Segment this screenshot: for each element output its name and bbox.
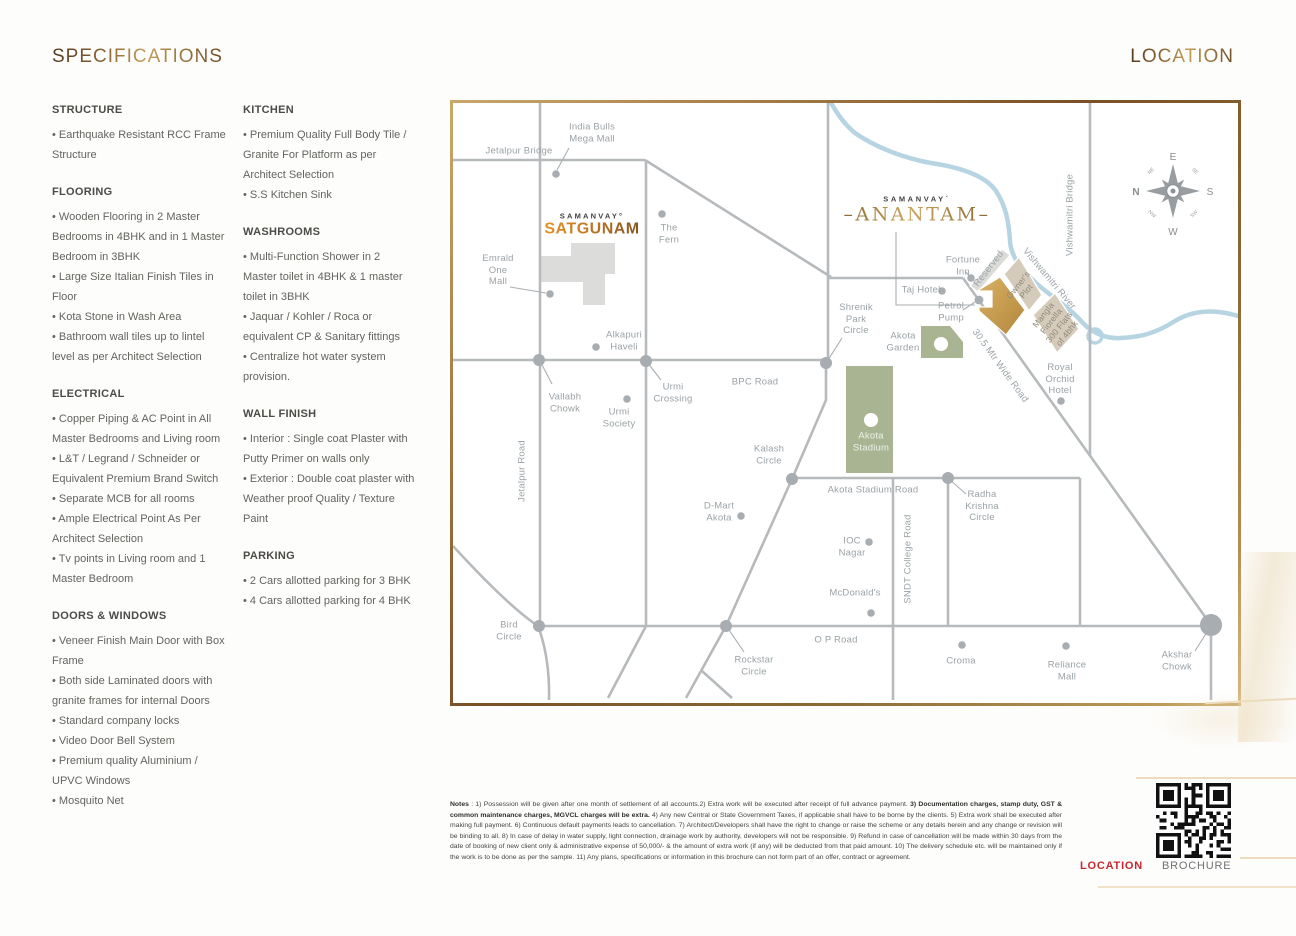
- page-title-specifications: SPECIFICATIONS: [52, 46, 223, 68]
- location-map: E S W N NE SE SW NW India Bulls Mega Mal…: [450, 100, 1241, 706]
- anantam-brand-mark: SAMANVAY´: [843, 195, 990, 204]
- satgunam-brand-mark: SAMANVAY°: [544, 212, 639, 221]
- spec-item: • S.S Kitchen Sink: [243, 185, 415, 205]
- decor-streak: [1136, 777, 1296, 779]
- spec-item: • Video Door Bell System: [52, 731, 228, 751]
- footer-tab-brochure[interactable]: BROCHURE: [1162, 860, 1231, 872]
- spec-section-wall-finish: WALL FINISH• Interior : Single coat Plas…: [243, 408, 415, 529]
- spec-item: • L&T / Legrand / Schneider or Equivalen…: [52, 449, 228, 489]
- spec-section-title: STRUCTURE: [52, 104, 228, 116]
- spec-item: • Kota Stone in Wash Area: [52, 307, 228, 327]
- notes-paragraph: Notes : 1) Possession will be given afte…: [450, 800, 1062, 864]
- spec-item: • Premium Quality Full Body Tile / Grani…: [243, 125, 415, 185]
- spec-item: • Large Size Italian Finish Tiles in Flo…: [52, 267, 228, 307]
- map-label-radha-krishna-circle: Radha Krishna Circle: [965, 489, 999, 524]
- map-label-reliance-mall: Reliance Mall: [1048, 660, 1087, 683]
- anantam-logo: SAMANVAY´ –ANANTAM–: [843, 195, 990, 226]
- map-label-akshar-chowk: Akshar Chowk: [1162, 650, 1193, 673]
- map-label-op-road: O P Road: [814, 634, 857, 646]
- spec-section-title: WALL FINISH: [243, 408, 415, 420]
- map-label-sndt-college-road: SNDT College Road: [902, 514, 914, 603]
- spec-section-title: PARKING: [243, 550, 415, 562]
- map-label-shrenik-park-circle: Shrenik Park Circle: [839, 302, 873, 337]
- decor-streak: [1098, 886, 1296, 888]
- spec-item: • Tv points in Living room and 1 Master …: [52, 549, 228, 589]
- map-label-alkapuri-haveli: Alkapuri Haveli: [606, 330, 642, 353]
- satgunam-project-name: SATGUNAM: [544, 221, 639, 239]
- spec-item: • Multi-Function Shower in 2 Master toil…: [243, 247, 415, 307]
- spec-section-title: KITCHEN: [243, 104, 415, 116]
- spec-item: • 4 Cars allotted parking for 4 BHK: [243, 591, 415, 611]
- spec-item: • Mosquito Net: [52, 791, 228, 811]
- spec-section-kitchen: KITCHEN• Premium Quality Full Body Tile …: [243, 104, 415, 205]
- footer-tab-location[interactable]: LOCATION: [1080, 860, 1143, 872]
- spec-section-electrical: ELECTRICAL• Copper Piping & AC Point in …: [52, 388, 228, 589]
- map-label-jetalpur-bridge: Jetalpur Bridge: [486, 145, 553, 157]
- map-label-vishwamitri-bridge: Vishwamitri Bridge: [1064, 174, 1076, 256]
- map-label-akota-garden: Akota Garden: [887, 331, 920, 354]
- notes-text-1: : 1) Possession will be given after one …: [469, 801, 910, 808]
- brochure-page: SPECIFICATIONS LOCATION STRUCTURE• Earth…: [0, 0, 1296, 936]
- map-label-bpc-road: BPC Road: [732, 376, 778, 388]
- map-labels-layer: India Bulls Mega MallJetalpur BridgeThe …: [453, 103, 1238, 703]
- map-label-fortune-inn: Fortune Inn: [946, 255, 980, 278]
- spec-section-doors-windows: DOORS & WINDOWS• Veneer Finish Main Door…: [52, 610, 228, 811]
- decor-streak: [1238, 552, 1296, 742]
- map-label-owners-plot: Owner's Plot: [1004, 269, 1040, 307]
- spec-section-flooring: FLOORING• Wooden Flooring in 2 Master Be…: [52, 186, 228, 367]
- map-label-jetalpur-road: Jetalpur Road: [516, 440, 528, 502]
- spec-section-title: ELECTRICAL: [52, 388, 228, 400]
- notes-label: Notes: [450, 801, 469, 808]
- map-label-kalash-circle: Kalash Circle: [754, 444, 784, 467]
- spec-item: • Separate MCB for all rooms: [52, 489, 228, 509]
- spec-item: • Earthquake Resistant RCC Frame Structu…: [52, 125, 228, 165]
- map-label-mcdonalds: McDonald's: [829, 587, 880, 599]
- map-label-akota-stadium-road: Akota Stadium Road: [828, 484, 919, 496]
- satgunam-logo: SAMANVAY° SATGUNAM: [544, 212, 639, 239]
- map-label-croma: Croma: [946, 655, 976, 667]
- spec-item: • Premium quality Aluminium / UPVC Windo…: [52, 751, 228, 791]
- map-label-the-fern: The Fern: [659, 223, 679, 246]
- map-label-india-bulls-mega-mall: India Bulls Mega Mall: [569, 122, 615, 145]
- map-label-rockstar-circle: Rockstar Circle: [734, 655, 773, 678]
- spec-section-parking: PARKING• 2 Cars allotted parking for 3 B…: [243, 550, 415, 611]
- spec-item: • Centralize hot water system provision.: [243, 347, 415, 387]
- spec-item: • Both side Laminated doors with granite…: [52, 671, 228, 711]
- map-label-royal-orchid-hotel: Royal Orchid Hotel: [1045, 362, 1074, 397]
- spec-item: • Bathroom wall tiles up to lintel level…: [52, 327, 228, 367]
- decor-streak: [1240, 857, 1296, 859]
- map-label-urmi-crossing: Urmi Crossing: [653, 382, 692, 405]
- spec-item: • Standard company locks: [52, 711, 228, 731]
- spec-section-washrooms: WASHROOMS• Multi-Function Shower in 2 Ma…: [243, 226, 415, 387]
- notes-text-2: 4) Any new Central or State Government T…: [450, 812, 1062, 861]
- page-title-location: LOCATION: [1130, 46, 1234, 68]
- spec-section-title: WASHROOMS: [243, 226, 415, 238]
- spec-section-structure: STRUCTURE• Earthquake Resistant RCC Fram…: [52, 104, 228, 165]
- spec-item: • Interior : Single coat Plaster with Pu…: [243, 429, 415, 469]
- map-label-ioc-nagar: IOC Nagar: [839, 536, 866, 559]
- spec-item: • Exterior : Double coat plaster with We…: [243, 469, 415, 529]
- map-label-urmi-society: Urmi Society: [603, 407, 636, 430]
- map-label-bird-circle: Bird Circle: [496, 620, 521, 643]
- map-label-petrol-pump: Petrol Pump: [938, 301, 964, 324]
- spec-item: • Wooden Flooring in 2 Master Bedrooms i…: [52, 207, 228, 267]
- spec-item: • 2 Cars allotted parking for 3 BHK: [243, 571, 415, 591]
- brochure-qr-code: [1156, 783, 1231, 858]
- spec-item: • Ample Electrical Point As Per Architec…: [52, 509, 228, 549]
- spec-item: • Copper Piping & AC Point in All Master…: [52, 409, 228, 449]
- anantam-project-name: –ANANTAM–: [843, 204, 990, 226]
- spec-item: • Jaquar / Kohler / Roca or equivalent C…: [243, 307, 415, 347]
- specifications-column-1: STRUCTURE• Earthquake Resistant RCC Fram…: [52, 104, 228, 832]
- specifications-column-2: KITCHEN• Premium Quality Full Body Tile …: [243, 104, 415, 632]
- map-label-d-mart-akota: D-Mart Akota: [704, 501, 734, 524]
- spec-section-title: DOORS & WINDOWS: [52, 610, 228, 622]
- map-label-vallabh-chowk: Vallabh Chowk: [549, 392, 581, 415]
- map-label-akota-stadium: Akota Stadium: [853, 431, 889, 454]
- map-label-emrald-one-mall: Emrald One Mall: [482, 253, 513, 288]
- spec-section-title: FLOORING: [52, 186, 228, 198]
- map-label-road-30-5-mtr: 30.5 Mtr Wide Road: [969, 327, 1030, 405]
- spec-item: • Veneer Finish Main Door with Box Frame: [52, 631, 228, 671]
- map-label-taj-hotel: Taj Hotel: [902, 284, 941, 296]
